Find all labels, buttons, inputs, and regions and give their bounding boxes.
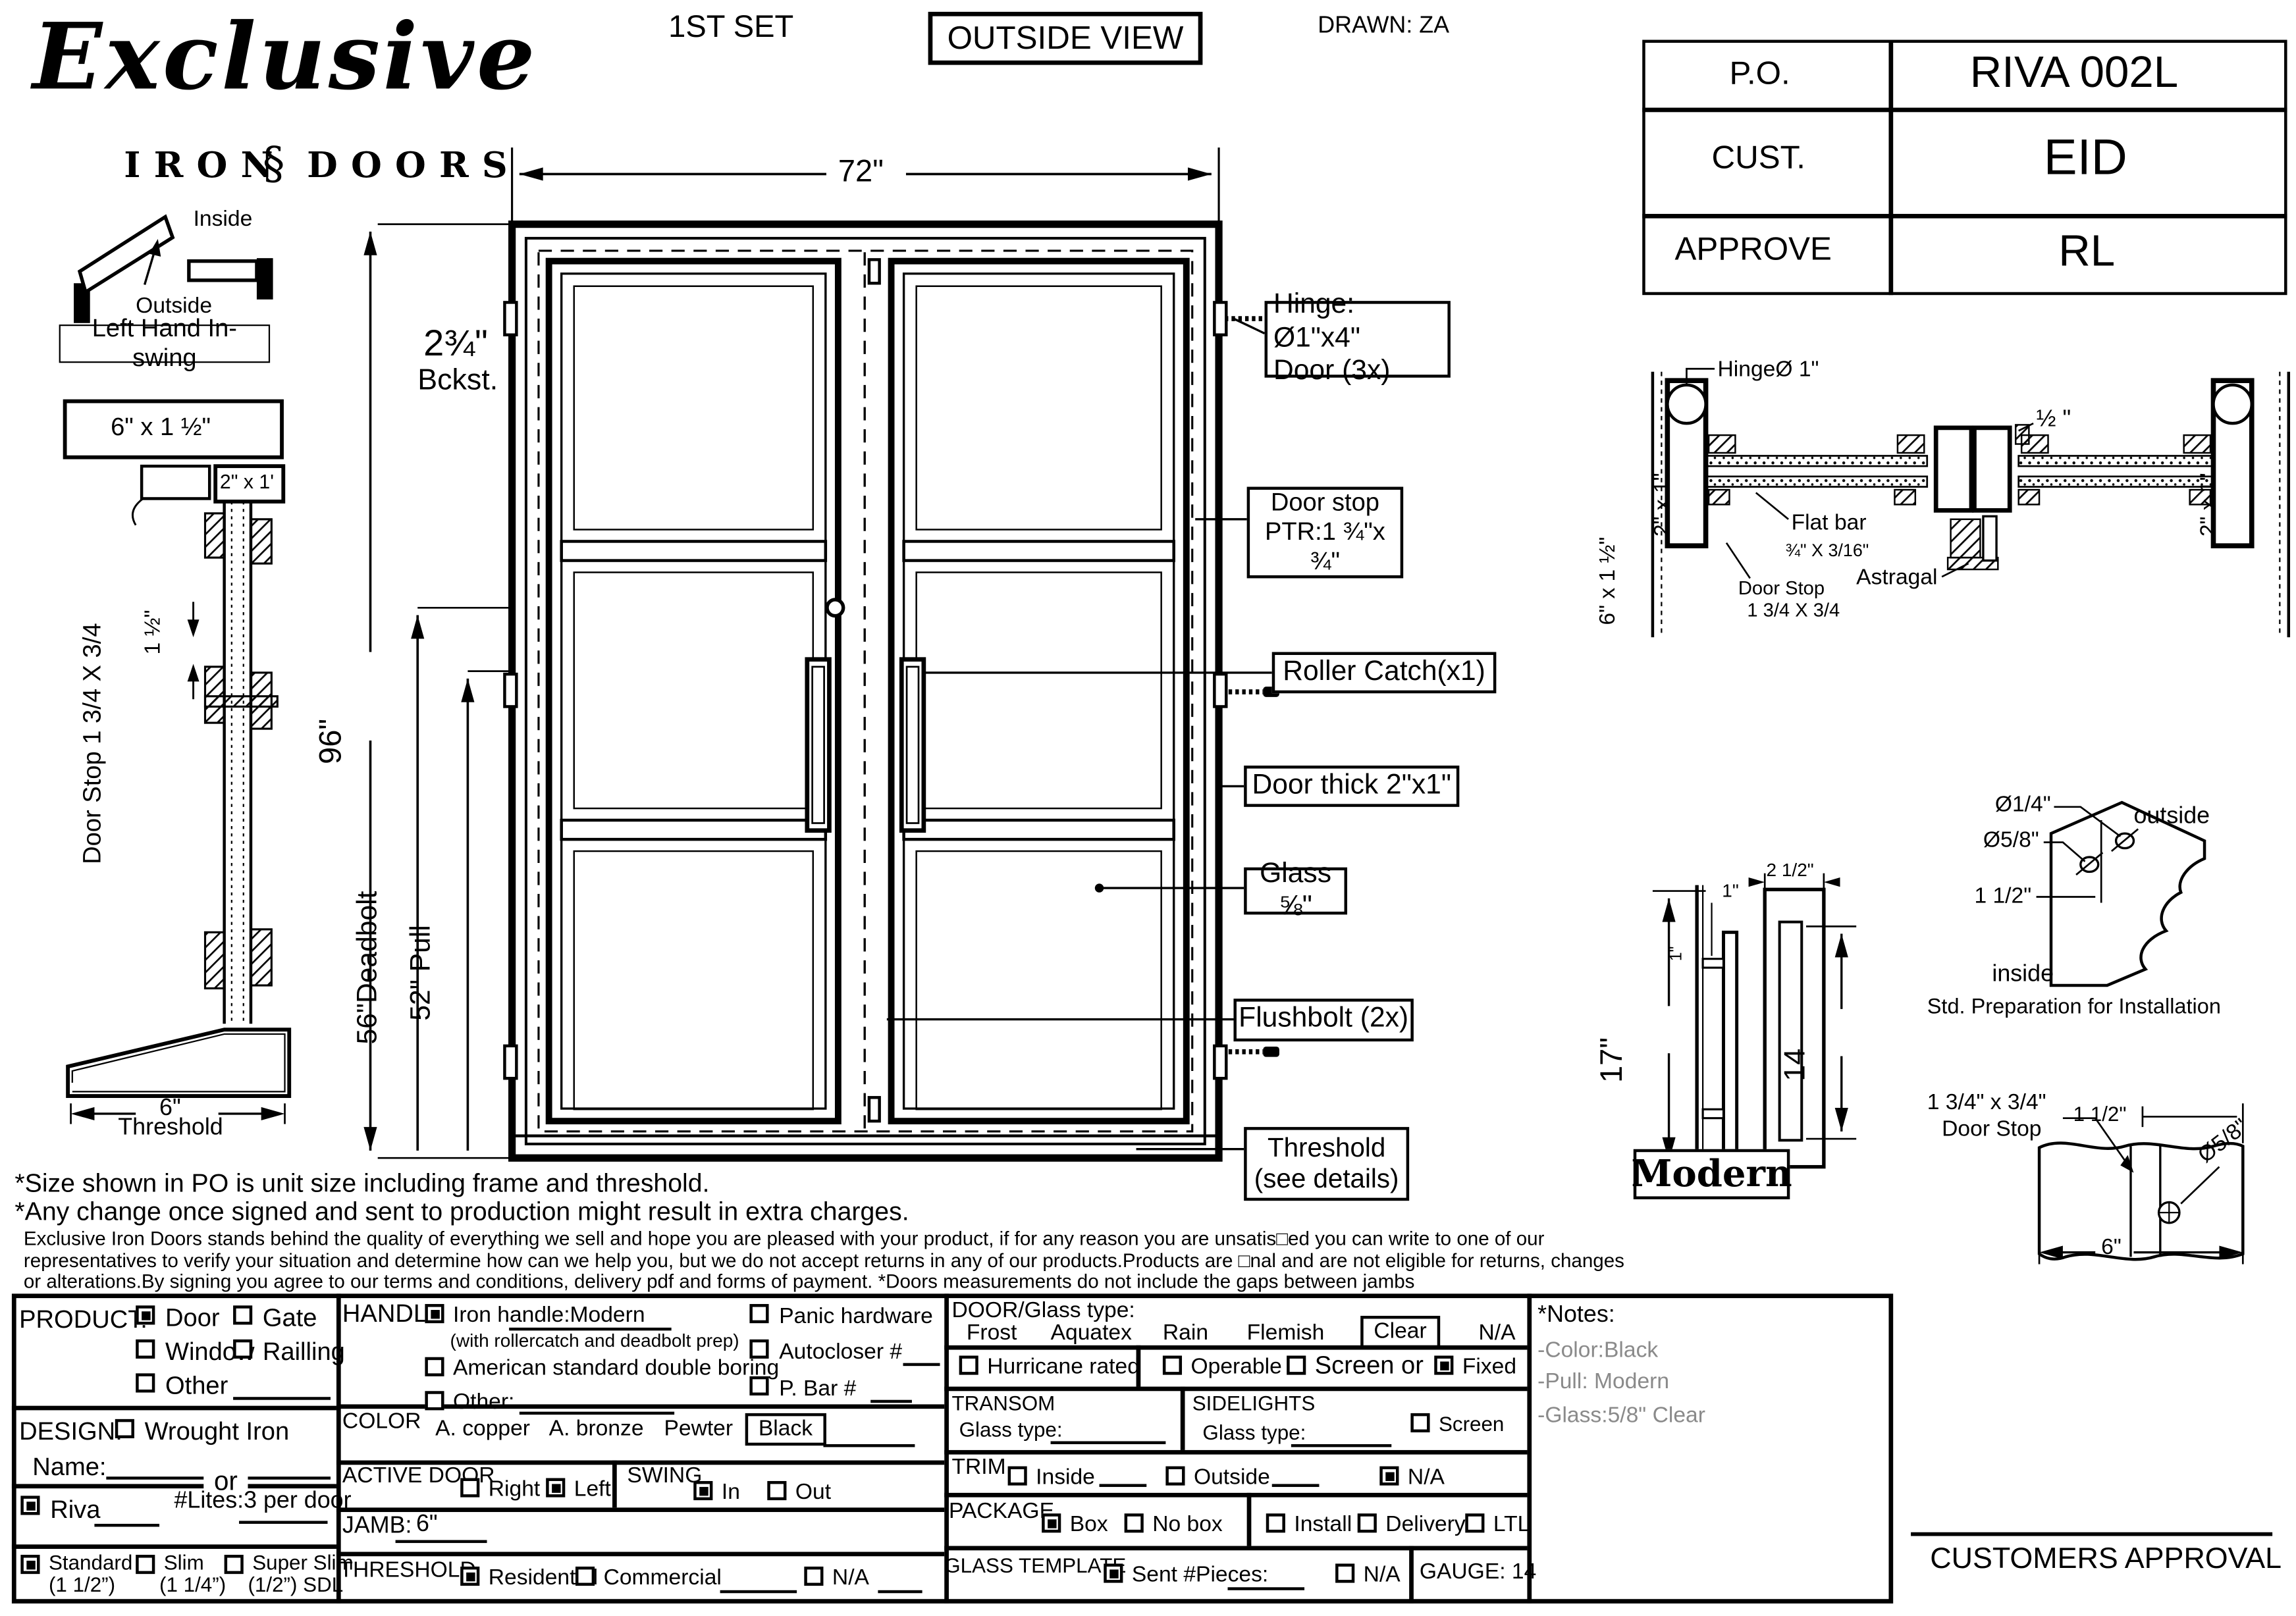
checkbox-sidelights-screen[interactable] <box>1410 1413 1429 1432</box>
dim-deadbolt: 56"Deadbolt <box>354 891 384 1045</box>
template-sent-label: Sent #Pieces: <box>1132 1563 1268 1586</box>
glass-aquatex[interactable]: Aquatex <box>1051 1322 1132 1345</box>
swing-inside-label: Inside <box>194 208 253 231</box>
info-po-label: P.O. <box>1729 56 1790 90</box>
customers-approval-label: CUSTOMERS APPROVAL <box>1930 1544 2282 1575</box>
handle-dim-17: 17" <box>1597 1037 1629 1083</box>
design-lites-blank <box>239 1521 327 1523</box>
callout-glass: Glass ⅝" <box>1244 868 1347 915</box>
threshold-section-label: THRESHOLD <box>339 1559 475 1582</box>
head-doorstop-line1: Door Stop <box>1738 578 1825 598</box>
package-label: PACKAGE <box>949 1500 1054 1523</box>
transom-glass-label: Glass type: <box>959 1419 1063 1441</box>
checkbox-screen-or[interactable] <box>1287 1355 1306 1374</box>
prep-inside: inside <box>1992 963 2054 988</box>
package-box-label: Box <box>1070 1513 1108 1536</box>
checkbox-fixed[interactable] <box>1434 1355 1453 1374</box>
head-tube-left: 2" x 1" <box>1651 473 1674 536</box>
jamb-dim-label: 1 ½" <box>142 610 165 654</box>
checkbox-threshold-na[interactable] <box>804 1567 823 1586</box>
trim-outside-label: Outside <box>1194 1467 1270 1490</box>
checkbox-handle-autocloser[interactable] <box>749 1340 768 1359</box>
head-half-dim: ½ " <box>2037 409 2071 434</box>
prep-d58: Ø5/8" <box>1983 829 2039 852</box>
dim-height: 96" <box>315 719 348 764</box>
template-na-label: N/A <box>1364 1563 1401 1586</box>
sidelights-screen-label: Screen <box>1439 1413 1504 1435</box>
checkbox-template-na[interactable] <box>1335 1563 1354 1582</box>
trim-na-label: N/A <box>1408 1467 1445 1490</box>
trim-label: TRIM <box>951 1456 1005 1479</box>
color-black-selected[interactable]: Black <box>745 1413 826 1446</box>
glass-rain[interactable]: Rain <box>1163 1322 1208 1345</box>
handle-pbar-blank[interactable] <box>870 1400 912 1403</box>
note-pull: -Pull: Modern <box>1537 1370 1669 1394</box>
prep-d14: Ø1/4" <box>1995 794 2051 817</box>
design-standard-line1: Standard <box>49 1552 132 1574</box>
callout-glass-label: Glass ⅝" <box>1247 858 1345 924</box>
product-other-blank[interactable] <box>233 1397 331 1399</box>
callout-hinge-line1: Hinge: Ø1"x4" <box>1273 290 1447 355</box>
product-label: PRODUCT: <box>19 1307 147 1334</box>
disclaimer-para1: Exclusive Iron Doors stands behind the q… <box>24 1229 1545 1249</box>
swing-hand-box: Left Hand In-swing <box>59 325 270 363</box>
callout-threshold: Threshold (see details) <box>1244 1127 1409 1201</box>
info-cust-label: CUST. <box>1712 140 1805 174</box>
callout-thick-label: Door thick 2"x1" <box>1252 769 1451 802</box>
handle-panic-label: Panic hardware <box>779 1305 933 1328</box>
design-standard-line2: (1 1/2”) <box>49 1574 115 1596</box>
stop-size-line1: 1 3/4" x 3/4" <box>1927 1091 2046 1114</box>
gauge-label: GAUGE: 14 <box>1420 1561 1536 1584</box>
checkbox-product-other[interactable] <box>136 1373 155 1392</box>
notes-title: *Notes: <box>1537 1304 1615 1329</box>
checkbox-package-nobox[interactable] <box>1125 1513 1144 1532</box>
handle-other-label: Other: <box>453 1391 514 1414</box>
checkbox-trim-na[interactable] <box>1379 1467 1399 1486</box>
handle-american-label: American standard double boring <box>453 1357 779 1380</box>
prep-d15: 1 1/2" <box>1974 885 2031 908</box>
checkbox-design-riva[interactable] <box>20 1496 40 1515</box>
logo-word-iron: IRON <box>124 146 286 183</box>
handle-autocloser-blank[interactable] <box>903 1363 940 1366</box>
color-label: COLOR <box>342 1410 421 1433</box>
handle-iron-sub: (with rollercatch and deadbolt prep) <box>450 1332 739 1351</box>
callout-doorstop: Door stop PTR:1 ¾"x ¾" <box>1247 487 1404 579</box>
set-label: 1ST SET <box>668 12 793 44</box>
checkbox-swing-out[interactable] <box>767 1481 786 1500</box>
head-astragal-label: Astragal <box>1856 567 1937 590</box>
handle-other-blank[interactable] <box>520 1412 674 1415</box>
dim-pull: 52" Pull <box>408 925 437 1020</box>
logo-script: Exclusive <box>32 9 538 105</box>
stop-d6: 6" <box>2101 1236 2122 1259</box>
head-flatbar-line2: ¾" X 3/16" <box>1786 541 1869 560</box>
checkbox-threshold-commercial[interactable] <box>575 1567 595 1586</box>
design-riva-label: Riva <box>50 1498 100 1524</box>
dim-width: 72" <box>838 157 884 189</box>
callout-doorstop-line1: Door stop <box>1271 488 1379 518</box>
checkbox-package-box[interactable] <box>1042 1513 1061 1532</box>
stop-d15: 1 1/2" <box>2073 1103 2127 1125</box>
fixed-label: Fixed <box>1462 1355 1516 1378</box>
checkbox-hurricane[interactable] <box>959 1355 978 1374</box>
transom-glass-blank[interactable] <box>1051 1441 1166 1444</box>
head-hinge-label: HingeØ 1" <box>1718 359 1819 382</box>
handle-dim-1b: 1" <box>1722 882 1739 901</box>
threshold-commercial-label: Commercial <box>604 1567 722 1590</box>
color-pewter[interactable]: Pewter <box>664 1418 733 1441</box>
checkbox-swing-in[interactable] <box>693 1481 712 1500</box>
checkbox-design-superslim[interactable] <box>225 1555 244 1574</box>
glass-flemish[interactable]: Flemish <box>1247 1322 1325 1345</box>
checkbox-design-standard[interactable] <box>20 1555 40 1574</box>
checkbox-product-gate[interactable] <box>233 1305 252 1324</box>
checkbox-design-wrought[interactable] <box>115 1419 134 1438</box>
design-label: DESIGN: <box>19 1419 122 1446</box>
jamb-blank <box>396 1540 487 1543</box>
active-left-label: Left <box>574 1478 611 1501</box>
checkbox-active-left[interactable] <box>546 1478 565 1497</box>
jamb-label: JAMB: <box>342 1515 412 1540</box>
note-glass: -Glass:5/8" Clear <box>1537 1404 1705 1427</box>
checkbox-template-sent[interactable] <box>1104 1563 1123 1582</box>
glass-clear-selected[interactable]: Clear <box>1360 1316 1440 1348</box>
checkbox-product-door[interactable] <box>136 1305 155 1324</box>
package-nobox-label: No box <box>1152 1513 1223 1536</box>
threshold-commercial-blank[interactable] <box>720 1590 797 1593</box>
logo-ornament-icon: § <box>263 142 285 188</box>
template-sent-blank[interactable] <box>1228 1587 1305 1590</box>
product-door-label: Door <box>165 1305 220 1332</box>
callout-roller-label: Roller Catch(x1) <box>1283 656 1485 689</box>
callout-thick: Door thick 2"x1" <box>1244 766 1459 807</box>
checkbox-handle-panic[interactable] <box>749 1304 768 1323</box>
sidelights-glass-label: Glass type: <box>1202 1422 1306 1444</box>
checkbox-operable[interactable] <box>1163 1355 1182 1374</box>
trim-inside-blank[interactable] <box>1100 1484 1147 1486</box>
checkbox-package-delivery[interactable] <box>1358 1513 1377 1532</box>
callout-roller: Roller Catch(x1) <box>1272 652 1497 694</box>
checkbox-trim-inside[interactable] <box>1008 1467 1027 1486</box>
head-jamb-size: 6" x 1 ½" <box>1597 536 1620 625</box>
handle-dim-1a: 1" <box>1670 947 1687 961</box>
callout-threshold-line1: Threshold <box>1268 1133 1385 1164</box>
sidelights-glass-blank[interactable] <box>1291 1444 1391 1447</box>
backset-num: 2¾" <box>423 325 488 363</box>
handle-autocloser-label: Autocloser # <box>779 1341 902 1364</box>
handle-dim-25: 2 1/2" <box>1766 862 1813 881</box>
swing-in-label: In <box>722 1481 740 1504</box>
checkbox-handle-american[interactable] <box>425 1357 444 1376</box>
checkbox-handle-pbar[interactable] <box>749 1376 768 1395</box>
info-cust-value: EID <box>2044 133 2127 186</box>
handle-iron-label: Iron handle:Modern <box>453 1304 645 1327</box>
color-bronze[interactable]: A. bronze <box>549 1418 644 1441</box>
trim-outside-blank[interactable] <box>1272 1484 1320 1486</box>
info-approve-value: RL <box>2058 228 2115 275</box>
package-ltl-label: LTL <box>1493 1513 1530 1536</box>
transom-label: TRANSOM <box>951 1393 1055 1415</box>
info-approve-label: APPROVE <box>1675 232 1832 266</box>
swing-section-label: SWING <box>627 1465 702 1488</box>
swing-hand-label: Left Hand In-swing <box>61 314 269 373</box>
design-superslim-line2: (1/2”) SDL <box>248 1574 343 1596</box>
backset-label: Bckst. <box>417 366 498 397</box>
logo-word-doors: DOORS <box>307 146 521 183</box>
product-other-label: Other <box>165 1373 228 1399</box>
design-slim-line2: (1 1/4”) <box>159 1574 226 1596</box>
design-wrought-label: Wrought Iron <box>145 1419 290 1446</box>
package-delivery-label: Delivery <box>1385 1513 1465 1536</box>
disclaimer-line1: *Size shown in PO is unit size including… <box>14 1170 709 1197</box>
drawing-sheet: Exclusive IRON § DOORS 1ST SET OUTSIDE V… <box>0 0 2296 1616</box>
checkbox-product-window[interactable] <box>136 1340 155 1359</box>
checkbox-design-slim[interactable] <box>136 1555 155 1574</box>
checkbox-package-install[interactable] <box>1266 1513 1285 1532</box>
view-label: OUTSIDE VIEW <box>948 21 1184 55</box>
disclaimer-line2: *Any change once signed and sent to prod… <box>14 1198 909 1225</box>
threshold-na-label: N/A <box>832 1567 869 1590</box>
checkbox-product-railing[interactable] <box>233 1340 252 1359</box>
sidelights-label: SIDELIGHTS <box>1192 1393 1316 1415</box>
color-copper[interactable]: A. copper <box>435 1418 530 1441</box>
callout-doorstop-line2: PTR:1 ¾"x ¾" <box>1250 518 1401 577</box>
jamb-doorstop-label: Door Stop 1 3/4 X 3/4 <box>80 623 106 864</box>
glass-type-label: DOOR/Glass type: <box>951 1299 1135 1322</box>
handle-name-box: Modern <box>1634 1149 1790 1199</box>
jamb-value[interactable]: 6" <box>416 1513 438 1538</box>
product-gate-label: Gate <box>263 1305 317 1332</box>
drawn-label: DRAWN: ZA <box>1318 14 1449 39</box>
checkbox-trim-outside[interactable] <box>1165 1467 1185 1486</box>
design-name-label: Name: <box>32 1455 106 1481</box>
trim-inside-label: Inside <box>1036 1467 1095 1490</box>
head-doorstop-line2: 1 3/4 X 3/4 <box>1747 600 1840 621</box>
callout-threshold-line2: (see details) <box>1254 1164 1399 1195</box>
package-install-label: Install <box>1294 1513 1352 1536</box>
callout-flushbolt-label: Flushbolt (2x) <box>1239 1004 1408 1037</box>
prep-caption: Std. Preparation for Installation <box>1927 997 2221 1020</box>
threshold-label: Threshold <box>118 1116 223 1141</box>
design-slim-line1: Slim <box>164 1552 204 1574</box>
active-right-label: Right <box>489 1478 541 1501</box>
handle-name-label: Modern <box>1631 1153 1792 1196</box>
threshold-na-blank[interactable] <box>878 1590 922 1593</box>
jamb-head-size: 6" x 1 ½" <box>111 415 211 441</box>
hurricane-label: Hurricane rated <box>987 1355 1140 1378</box>
swing-out-label: Out <box>795 1481 831 1504</box>
design-riva-blank[interactable] <box>94 1524 159 1526</box>
handle-pbar-label: P. Bar # <box>779 1378 856 1401</box>
checkbox-active-right[interactable] <box>460 1478 479 1497</box>
glass-na[interactable]: N/A <box>1478 1322 1515 1345</box>
prep-outside: outside <box>2133 806 2210 831</box>
callout-hinge: Hinge: Ø1"x4" Door (3x) <box>1265 301 1451 378</box>
handle-dim-14: 14 <box>1781 1049 1812 1082</box>
view-label-box: OUTSIDE VIEW <box>928 12 1203 65</box>
stop-size-line2: Door Stop <box>1942 1118 2041 1141</box>
callout-hinge-line2: Door (3x) <box>1273 356 1390 389</box>
checkbox-package-ltl[interactable] <box>1465 1513 1484 1532</box>
callout-flushbolt: Flushbolt (2x) <box>1233 999 1413 1041</box>
head-flatbar-line1: Flat bar <box>1792 512 1867 535</box>
product-railing-label: Railling <box>263 1340 345 1366</box>
checkbox-threshold-residential[interactable] <box>460 1567 479 1586</box>
glass-frost[interactable]: Frost <box>967 1322 1017 1345</box>
operable-label: Operable <box>1190 1355 1281 1378</box>
screen-or-label: Screen or <box>1315 1353 1424 1379</box>
info-po-value: RIVA 002L <box>1970 50 2178 97</box>
checkbox-handle-iron[interactable] <box>425 1304 444 1323</box>
disclaimer-para2: representatives to verify your situation… <box>24 1251 1624 1271</box>
design-lites-label: #Lites:3 per door <box>174 1490 351 1515</box>
template-label: GLASS TEMPLATE <box>944 1555 1126 1577</box>
disclaimer-para3: or alterations.By signing you agree to o… <box>24 1272 1415 1292</box>
checkbox-handle-other[interactable] <box>425 1391 444 1410</box>
color-blank[interactable] <box>823 1444 915 1447</box>
head-tube-right: 2" x 1" <box>2197 473 2220 536</box>
design-superslim-line1: Super Slim <box>252 1552 353 1574</box>
note-color: -Color:Black <box>1537 1340 1658 1363</box>
jamb-tube-size: 2" x 1' <box>220 472 274 493</box>
